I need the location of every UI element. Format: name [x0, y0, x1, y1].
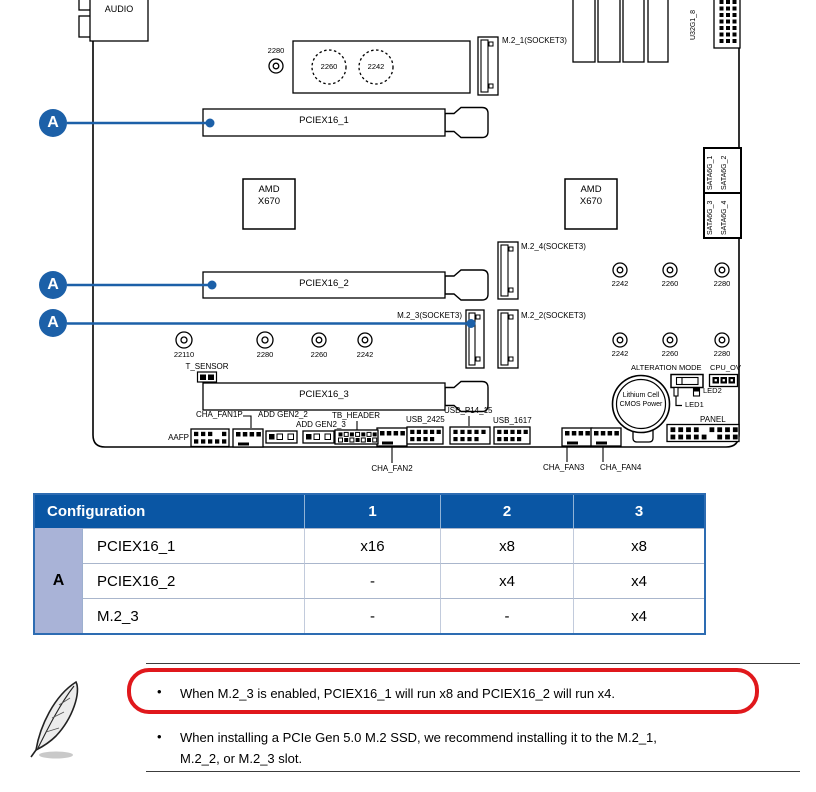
panel-header: [667, 425, 739, 442]
table-cell: x8: [573, 528, 704, 563]
standoff-ru-2242: 2242: [600, 280, 640, 289]
add-gen2-2-label: ADD GEN2_2: [258, 410, 308, 419]
audio-label: AUDIO: [90, 4, 148, 14]
m2-socket-2: [498, 310, 518, 368]
table-row-label: M.2_3: [83, 598, 304, 633]
chipset-label-1: AMD X670: [243, 184, 295, 208]
add-gen2-3-header: [303, 431, 334, 443]
standoff-ru-2260: 2260: [650, 280, 690, 289]
chipset-label-2: AMD X670: [565, 184, 617, 208]
pciex16-3-label: PCIEX16_3: [203, 390, 445, 401]
cha-fan4-header: [591, 428, 621, 446]
table-header-configuration: Configuration: [35, 495, 304, 528]
led2-label: LED2: [703, 387, 722, 396]
battery-label: Lithium Cell CMOS Power: [611, 392, 671, 409]
note-text-1: When M.2_3 is enabled, PCIEX16_1 will ru…: [180, 683, 800, 704]
dimm-slots: [573, 0, 668, 62]
cha-fan2-header: [377, 428, 407, 446]
table-cell: x8: [440, 528, 573, 563]
table-cell: -: [304, 563, 440, 598]
sata6g-1-label: SATA6G_1: [707, 156, 714, 190]
usb-2425-label: USB_2425: [406, 415, 445, 424]
cha-fan4-label: CHA_FAN4: [600, 463, 641, 472]
heatsink-circle-2260-label: 2260: [309, 63, 349, 72]
pciex16-1-label: PCIEX16_1: [203, 116, 445, 127]
heatsink-circle-2242-label: 2242: [356, 63, 396, 72]
table-row-label: PCIEX16_2: [83, 563, 304, 598]
usb-1617-label: USB_1617: [493, 416, 532, 425]
t-sensor-header: [198, 372, 217, 382]
table-cell: -: [304, 598, 440, 633]
tb-header: [335, 430, 378, 444]
standoff-rl-2280: 2280: [702, 350, 742, 359]
table-group-cell: A: [35, 528, 83, 633]
led1-label: LED1: [685, 401, 704, 410]
usb-p14-15-header: [450, 427, 490, 444]
note-text-2: When installing a PCIe Gen 5.0 M.2 SSD, …: [180, 727, 800, 769]
note-bullet-2: •: [157, 729, 162, 744]
heatsink-standoff-label: 2280: [256, 47, 296, 56]
m2-4-label: M.2_4(SOCKET3): [521, 242, 586, 251]
aafp-label: AAFP: [150, 433, 189, 442]
standoff-rl-2260: 2260: [650, 350, 690, 359]
cha-fan2-label: CHA_FAN2: [362, 464, 422, 473]
standoff-l-2280: 2280: [245, 351, 285, 360]
m2-socket-4: [498, 242, 518, 299]
config-table: Configuration 1 2 3 A PCIEX16_1 x16 x8 x…: [33, 493, 706, 635]
alteration-mode-label: ALTERATION MODE: [631, 364, 702, 373]
t-sensor-label: T_SENSOR: [179, 362, 235, 371]
note-bullet-1: •: [157, 684, 162, 699]
sata6g-4-label: SATA6G_4: [721, 201, 728, 235]
table-header-3: 3: [573, 495, 704, 528]
cha-fan3-label: CHA_FAN3: [543, 463, 584, 472]
table-cell: x4: [573, 563, 704, 598]
cha-fan1p-label: CHA_FAN1P: [196, 410, 243, 419]
table-row-label: PCIEX16_1: [83, 528, 304, 563]
note-quill-icon: [26, 676, 90, 760]
table-cell: x4: [573, 598, 704, 633]
table-header-2: 2: [440, 495, 573, 528]
standoff-l-22110: 22110: [164, 351, 204, 360]
u32g1-label: U32G1_8: [690, 10, 697, 40]
m2-2-label: M.2_2(SOCKET3): [521, 311, 586, 320]
add-gen2-2-header: [266, 431, 297, 443]
m2-socket-3: [466, 310, 484, 368]
usb-1617-header: [494, 427, 530, 444]
table-cell: -: [440, 598, 573, 633]
alteration-mode-switch: [671, 375, 703, 388]
pciex16-2-label: PCIEX16_2: [203, 279, 445, 290]
sata6g-2-label: SATA6G_2: [721, 156, 728, 190]
usb-2425-header: [407, 427, 443, 444]
table-cell: x16: [304, 528, 440, 563]
panel-label: PANEL: [700, 415, 726, 424]
m2-socket-1: [478, 37, 498, 95]
cpu-ov-jumper: [710, 375, 738, 387]
m2-1-label: M.2_1(SOCKET3): [502, 36, 567, 45]
manual-page: A A A AUDIO U32G1_8 M.2_1(SOCKET3) M.2_4…: [0, 0, 816, 792]
aafp-header: [191, 429, 229, 447]
sata6g-3-label: SATA6G_3: [707, 201, 714, 235]
table-cell: x4: [440, 563, 573, 598]
usb-header-u32g1: [714, 0, 740, 48]
standoff-ru-2280: 2280: [702, 280, 742, 289]
m2-3-label: M.2_3(SOCKET3): [396, 311, 462, 320]
notes-top-rule: [146, 663, 800, 664]
cha-fan1p-header: [233, 429, 263, 447]
notes-bottom-rule: [146, 771, 800, 772]
standoff-l-2260: 2260: [299, 351, 339, 360]
callout-letter-2: A: [39, 271, 67, 299]
callout-letter-1: A: [39, 109, 67, 137]
standoff-l-2242: 2242: [345, 351, 385, 360]
add-gen2-3-label: ADD GEN2_3: [296, 420, 346, 429]
cpu-ov-label: CPU_OV: [710, 364, 741, 373]
standoff-rl-2242: 2242: [600, 350, 640, 359]
usb-p14-15-label: USB_P14_15: [444, 406, 492, 415]
callout-letter-3: A: [39, 309, 67, 337]
motherboard-diagram: [0, 0, 816, 482]
cha-fan3-header: [562, 428, 592, 446]
table-header-1: 1: [304, 495, 440, 528]
tb-header-label: TB_HEADER: [332, 411, 380, 420]
